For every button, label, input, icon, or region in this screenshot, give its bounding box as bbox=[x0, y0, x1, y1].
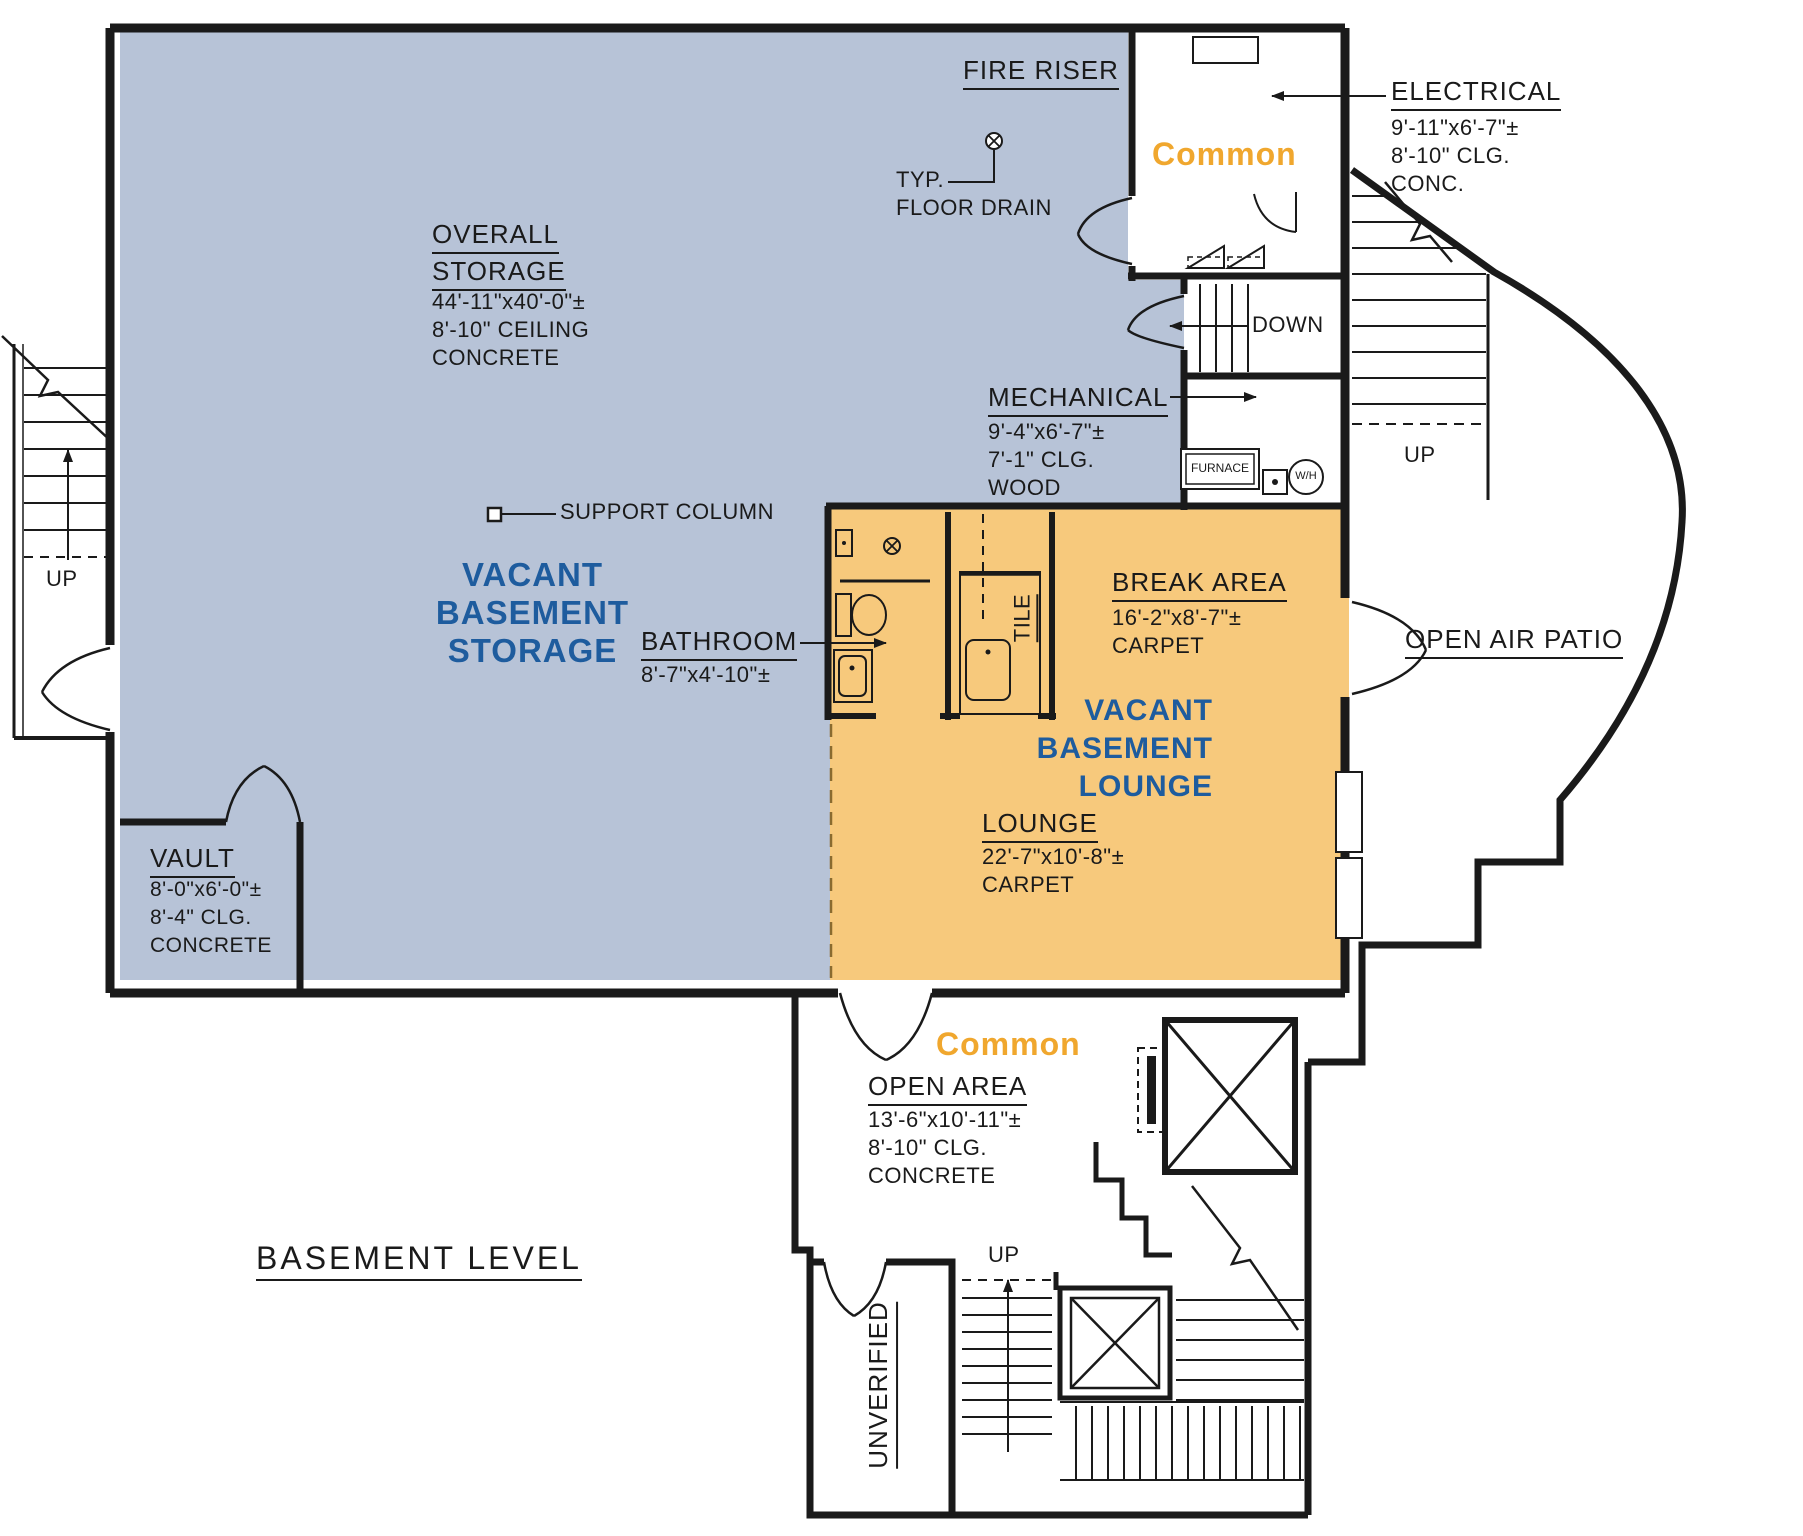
open-air-patio-label: OPEN AIR PATIO bbox=[1405, 625, 1623, 659]
lounge-label: LOUNGE bbox=[982, 809, 1098, 843]
floor-drain-note-line2: FLOOR DRAIN bbox=[896, 194, 1052, 222]
tile-label: TILE bbox=[1009, 594, 1038, 642]
water-heater-label: W/H bbox=[1289, 470, 1323, 483]
open-area-label: OPEN AREA bbox=[868, 1072, 1027, 1106]
elevator-lower-icon bbox=[1060, 1288, 1170, 1398]
plan-title: BASEMENT LEVEL bbox=[256, 1240, 582, 1281]
floorplan-drawing bbox=[0, 0, 1803, 1536]
lounge-zone-label: VACANT BASEMENT LOUNGE bbox=[963, 692, 1213, 806]
support-column-label: SUPPORT COLUMN bbox=[560, 499, 774, 524]
floor-drain-note: TYP. FLOOR DRAIN bbox=[896, 166, 1052, 222]
open-area-dims: 13'-6"x10'-11"± 8'-10" CLG. CONCRETE bbox=[868, 1106, 1021, 1190]
stairs-bottom-up bbox=[962, 1272, 1056, 1452]
up-right-label: UP bbox=[1404, 442, 1436, 467]
basement-floor-plan: FIRE RISER TYP. FLOOR DRAIN OVERALL STOR… bbox=[0, 0, 1803, 1536]
down-label: DOWN bbox=[1252, 312, 1324, 337]
mechanical-dims: 9'-4"x6'-7"± 7'-1" CLG. WOOD bbox=[988, 418, 1105, 502]
furnace-label: FURNACE bbox=[1181, 462, 1259, 476]
up-left-label: UP bbox=[46, 566, 78, 591]
lounge-south-door-arc bbox=[840, 993, 932, 1060]
mechanical-label: MECHANICAL bbox=[988, 383, 1168, 417]
elevator-upper-icon bbox=[1138, 1020, 1295, 1172]
common-lower-label: Common bbox=[936, 1026, 1081, 1063]
lounge-dims: 22'-7"x10'-8"± CARPET bbox=[982, 843, 1124, 899]
stairs-down-interior bbox=[1200, 284, 1248, 372]
patio-boundary bbox=[1308, 170, 1682, 1062]
floor-drain-note-line1: TYP. bbox=[896, 166, 1052, 194]
vault-label: VAULT bbox=[150, 844, 235, 878]
condensate-box-icon bbox=[1263, 470, 1287, 494]
vault-dims: 8'-0"x6'-0"± 8'-4" CLG. CONCRETE bbox=[150, 876, 272, 960]
stairs-left bbox=[2, 336, 112, 738]
west-entry-door-arc bbox=[42, 648, 110, 730]
electrical-dims: 9'-11"x6'-7"± 8'-10" CLG. CONC. bbox=[1391, 114, 1519, 198]
overall-storage-label: OVERALL STORAGE bbox=[432, 220, 566, 291]
up-bottom-label: UP bbox=[988, 1242, 1020, 1267]
bathroom-dim: 8'-7"x4'-10"± bbox=[641, 662, 770, 687]
common-upper-label: Common bbox=[1152, 136, 1297, 173]
overall-storage-dims: 44'-11"x40'-0"± 8'-10" CEILING CONCRETE bbox=[432, 288, 589, 372]
storage-zone-label: VACANT BASEMENT STORAGE bbox=[425, 556, 640, 670]
unverified-label: UNVERIFIED bbox=[864, 1301, 898, 1468]
break-area-dims: 16'-2"x8'-7"± CARPET bbox=[1112, 604, 1241, 660]
break-area-label: BREAK AREA bbox=[1112, 568, 1287, 602]
bathroom-label: BATHROOM bbox=[641, 627, 797, 661]
fire-riser-label: FIRE RISER bbox=[963, 56, 1119, 90]
electrical-label: ELECTRICAL bbox=[1391, 77, 1561, 111]
